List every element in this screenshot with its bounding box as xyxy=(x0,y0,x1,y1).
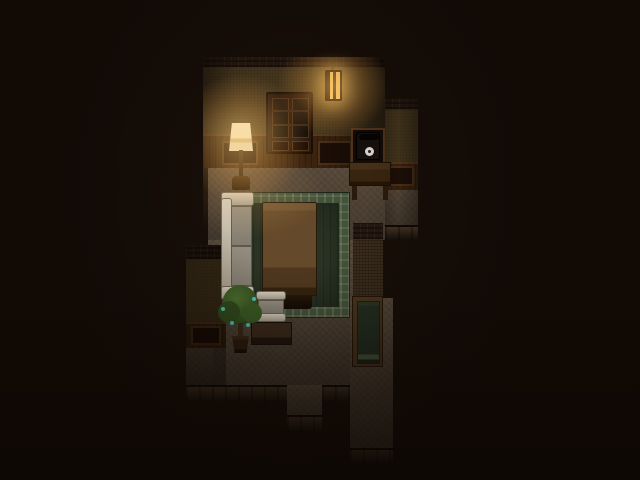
floor-edge-right-nook xyxy=(385,225,418,240)
plant-blossom-1 xyxy=(221,307,225,311)
cabinet-drawer-right xyxy=(292,141,309,151)
cabinet-drawer-left xyxy=(272,141,289,151)
upper-wall-cap xyxy=(203,57,385,68)
dining-table xyxy=(262,202,317,296)
nook-wainscot-panel xyxy=(389,166,414,186)
floor-left-nook xyxy=(186,348,213,385)
green-door[interactable] xyxy=(352,296,383,367)
left-wainscot-panel xyxy=(191,326,221,345)
cabinet-mullion xyxy=(272,110,309,112)
plant-blossom-3 xyxy=(230,321,234,325)
plant-foliage-3 xyxy=(242,303,262,323)
plant-foliage-2 xyxy=(218,301,240,323)
potted-plant xyxy=(218,283,262,355)
floor-edge-step xyxy=(287,415,322,432)
phone-handset xyxy=(359,134,379,140)
phone-table xyxy=(349,162,391,186)
plant-blossom-2 xyxy=(252,297,256,301)
cabinet-pane-left xyxy=(272,98,289,138)
floor-bottom-step xyxy=(287,385,322,415)
wall-lantern[interactable] xyxy=(325,70,342,101)
cabinet-pane-right xyxy=(292,98,309,138)
floor-edge-bottom-mid xyxy=(322,385,350,402)
green-door-panel xyxy=(357,301,380,364)
plant-pot xyxy=(232,336,249,353)
floor-edge-corridor xyxy=(350,448,393,464)
left-wall-cap xyxy=(186,245,226,260)
cabinet-mullion-2 xyxy=(272,124,309,126)
phone-table-leg-right xyxy=(383,186,388,200)
plant-blossom-4 xyxy=(246,323,250,327)
nook-wall-face xyxy=(385,110,418,162)
floor-edge-bottom-left xyxy=(186,385,287,402)
nook-wall-cap xyxy=(385,98,418,110)
lamp-base xyxy=(232,176,250,190)
sofa-cushion-2 xyxy=(231,246,252,286)
column-wall-face xyxy=(353,240,383,298)
glass-cabinet[interactable] xyxy=(266,92,313,154)
game-viewport[interactable] xyxy=(0,0,640,480)
floor-right-nook xyxy=(385,190,418,225)
wainscot-panel-right xyxy=(318,141,352,165)
telephone[interactable] xyxy=(356,132,380,160)
phone-table-leg-left xyxy=(352,186,357,200)
phone-dial-center xyxy=(368,150,371,153)
floor-lamp[interactable] xyxy=(228,122,254,192)
column-wall-cap xyxy=(353,223,383,240)
lamp-shade xyxy=(229,123,253,151)
sofa-cushion-1 xyxy=(231,206,252,246)
